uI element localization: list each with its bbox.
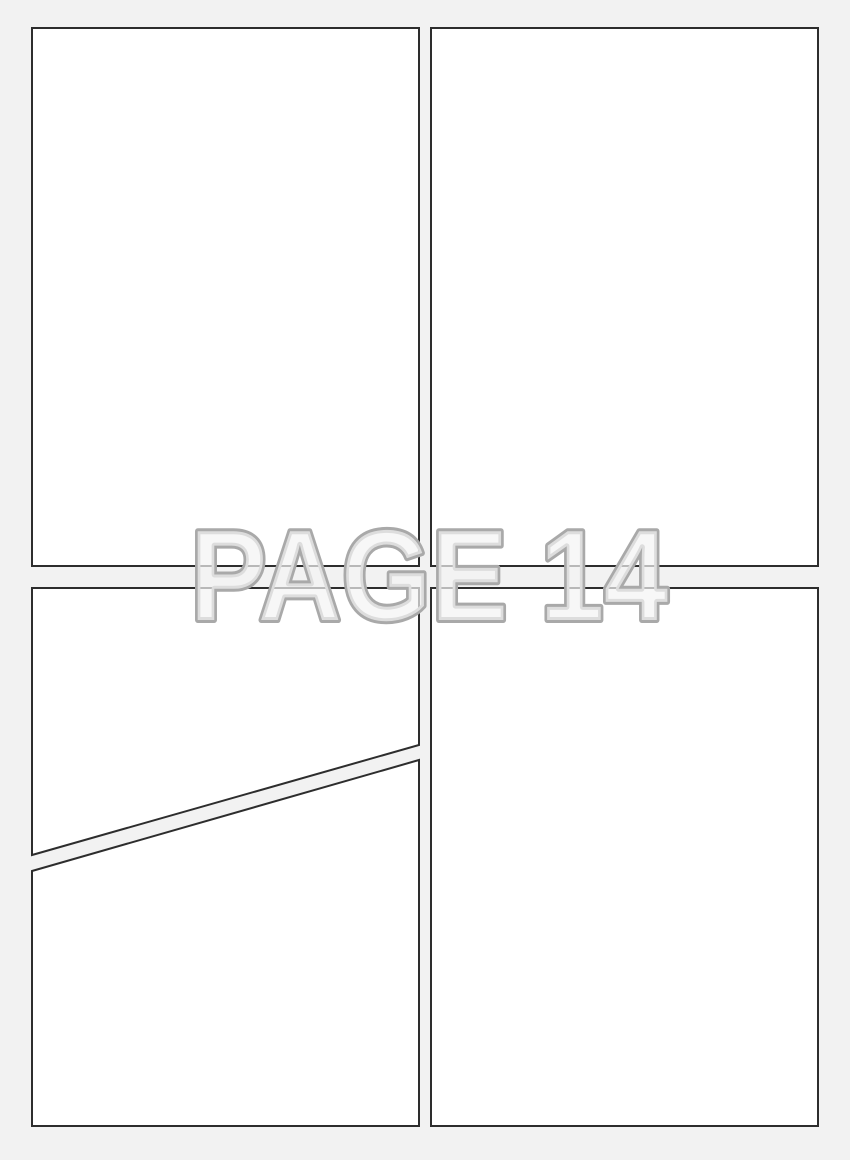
panel-top-left bbox=[32, 28, 419, 566]
comic-page-template: PAGE 14 bbox=[0, 0, 850, 1160]
panel-top-right bbox=[431, 28, 818, 566]
panel-layout: PAGE 14 bbox=[0, 0, 850, 1160]
page-number-watermark: PAGE 14 bbox=[190, 504, 668, 648]
panel-bottom-right bbox=[431, 588, 818, 1126]
